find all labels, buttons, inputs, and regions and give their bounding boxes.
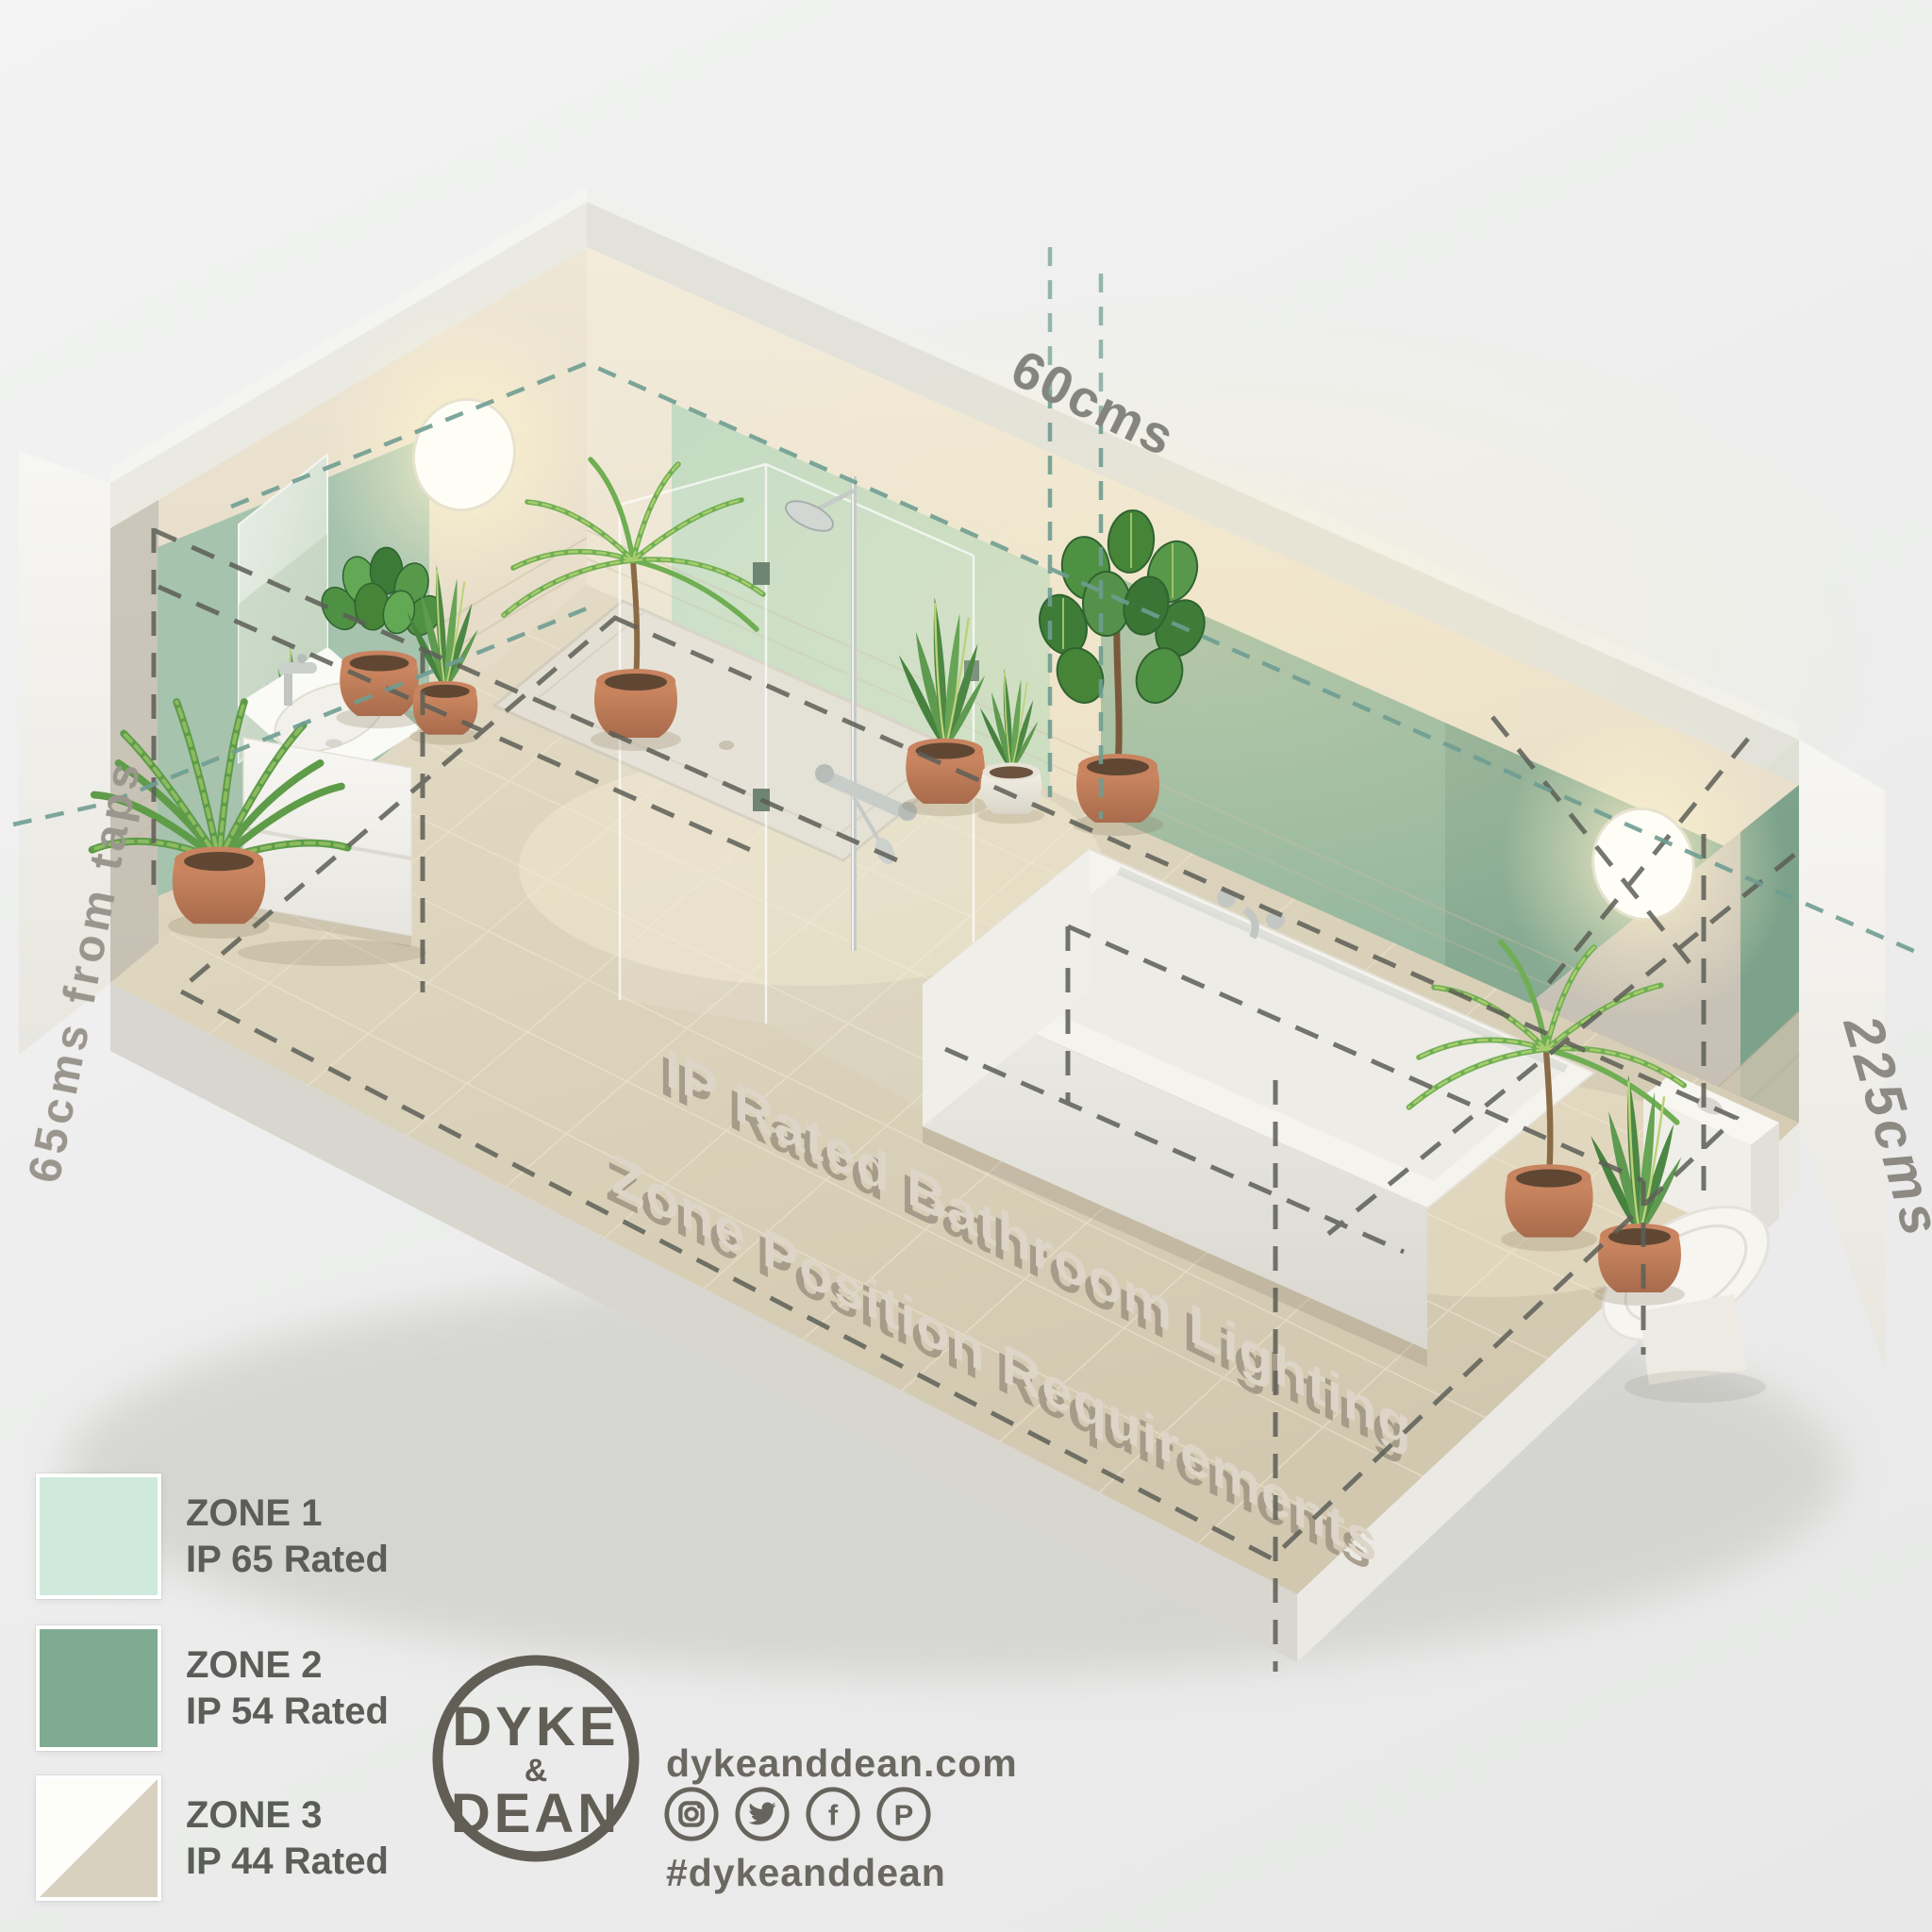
pinterest-glyph: P: [894, 1799, 914, 1832]
website-link[interactable]: dykeanddean.com: [666, 1741, 1018, 1786]
zone1-swatch: [36, 1474, 161, 1599]
zone3-rating: IP 44 Rated: [186, 1839, 389, 1885]
zone1-rating: IP 65 Rated: [186, 1537, 389, 1583]
facebook-glyph: f: [828, 1799, 839, 1832]
legend-zone-1: ZONE 1 IP 65 Rated: [36, 1474, 389, 1599]
zone2-rating: IP 54 Rated: [186, 1689, 389, 1735]
zone1-label: ZONE 1: [186, 1491, 389, 1537]
logo-word-top: DYKE: [452, 1696, 619, 1757]
legend-zone-2: ZONE 2 IP 54 Rated: [36, 1625, 389, 1751]
facebook-icon[interactable]: f: [804, 1785, 862, 1843]
zone3-label: ZONE 3: [186, 1792, 389, 1839]
dyke-and-dean-logo: DYKE & DEAN: [423, 1643, 649, 1878]
glass-hinge: [753, 562, 770, 585]
zone2-swatch: [36, 1625, 161, 1751]
infographic-canvas: IP Rated Bathroom Lighting IP Rated Bath…: [0, 0, 1932, 1932]
logo-word-bottom: DEAN: [451, 1783, 621, 1844]
twitter-icon[interactable]: [733, 1785, 791, 1843]
zone3-swatch: [36, 1775, 161, 1901]
pinterest-icon[interactable]: P: [874, 1785, 933, 1843]
legend-zone-3: ZONE 3 IP 44 Rated: [36, 1775, 389, 1901]
hashtag[interactable]: #dykeanddean: [666, 1851, 946, 1895]
zone2-label: ZONE 2: [186, 1642, 389, 1689]
instagram-icon[interactable]: [662, 1785, 721, 1843]
social-icons: f P: [662, 1785, 933, 1843]
